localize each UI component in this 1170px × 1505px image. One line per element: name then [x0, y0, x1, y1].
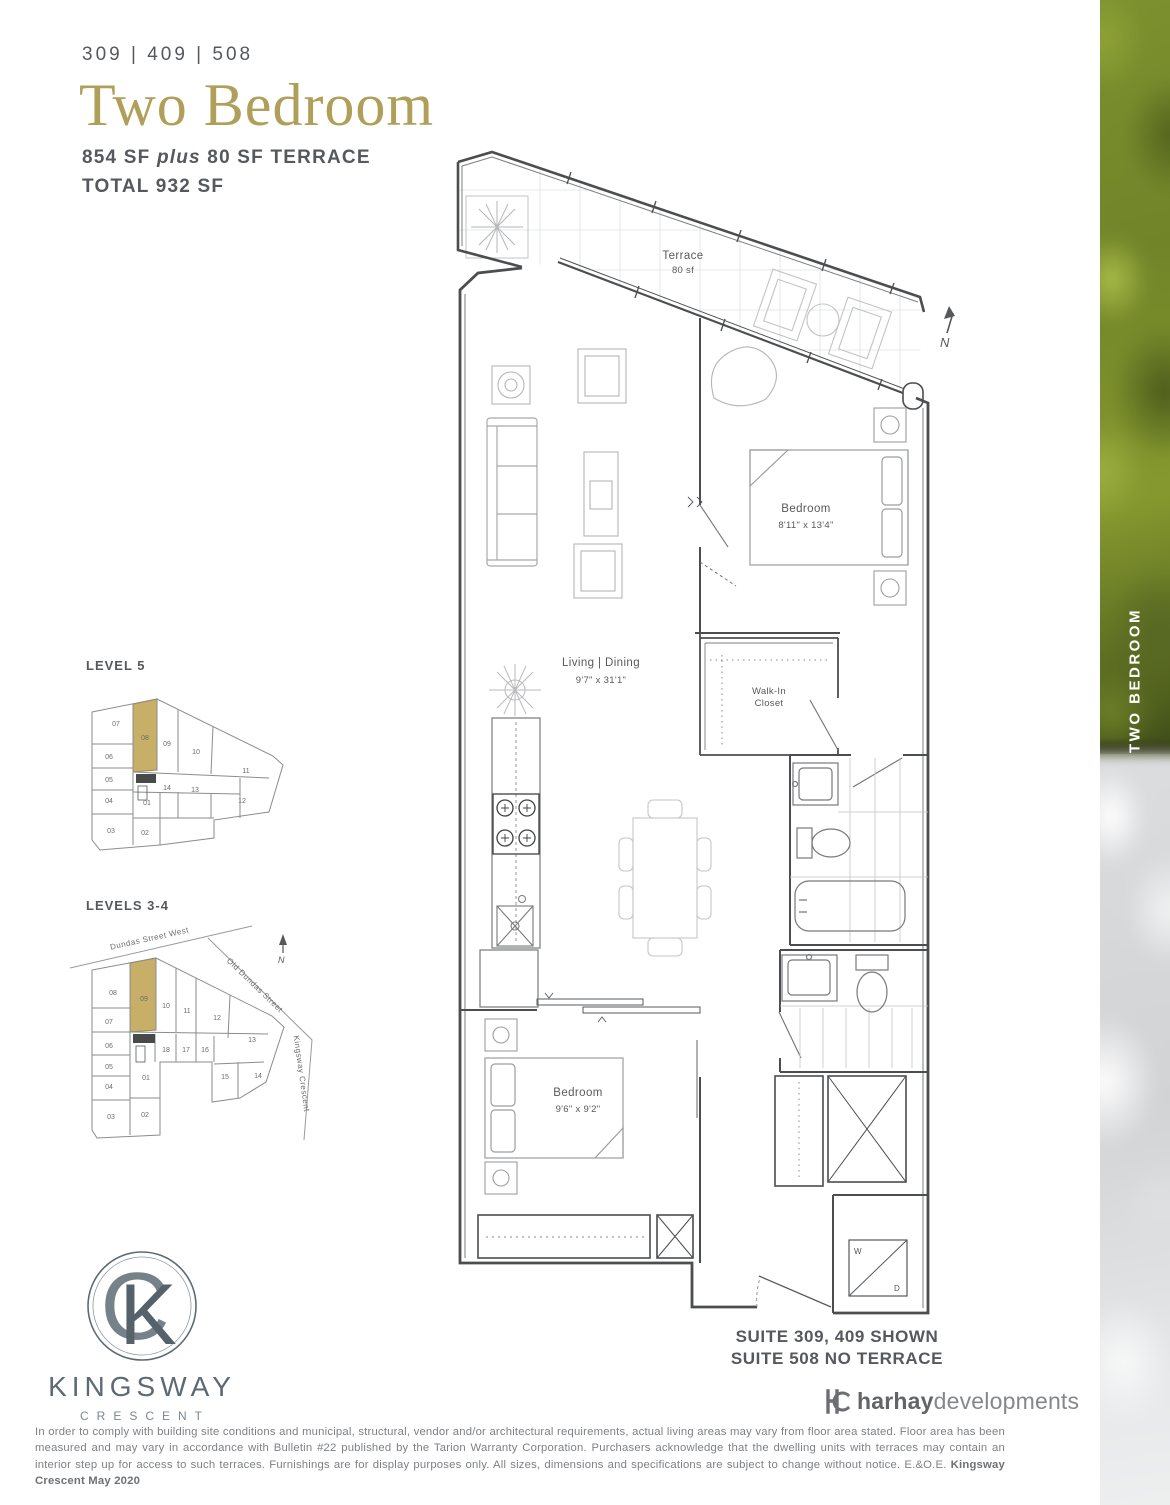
suite-note-line1: SUITE 309, 409 SHOWN: [736, 1327, 939, 1346]
kp34-unit: 15: [221, 1074, 229, 1081]
logo-name: KINGSWAY: [48, 1371, 236, 1402]
outer-walls: [460, 268, 928, 1313]
area-line: 854 SF plus 80 SF TERRACE: [82, 147, 434, 169]
living-room: Living | Dining 9'7" x 31'1": [487, 349, 640, 716]
terrace-area-label: 80 sf: [672, 265, 694, 276]
walk-in-closet: Walk-In Closet: [700, 633, 838, 755]
white-flower-photo: [1100, 754, 1170, 1505]
north-arrow-icon: N: [940, 306, 955, 350]
header: 309 | 409 | 508 Two Bedroom 854 SF plus …: [82, 44, 434, 198]
bath2-toilet: [856, 955, 888, 970]
main-floorplan: Terrace 80 sf N: [440, 140, 980, 1380]
armchair1: [711, 347, 776, 406]
harhay-mark-icon: [822, 1386, 852, 1416]
kp5-unit: 10: [192, 749, 200, 756]
sofa: [487, 418, 537, 566]
keyplan-north-label: N: [278, 955, 285, 965]
bedroom1-label: Bedroom: [781, 503, 830, 515]
street-kingsway-crescent: Kingsway Crescent: [292, 1035, 312, 1113]
street-old-dundas: Old Dundas Street: [225, 956, 285, 1014]
bath1-toilet: [797, 828, 812, 858]
developer-name-bold: harhay: [857, 1388, 934, 1414]
kp34-unit: 05: [105, 1064, 113, 1071]
linen-closet: [775, 1076, 906, 1186]
kp5-unit: 12: [238, 798, 246, 805]
laundry-closet: W D: [833, 1195, 928, 1313]
terrace: Terrace 80 sf: [450, 145, 930, 410]
kp34-unit: 06: [105, 1043, 113, 1050]
keyplan-levels34: LEVELS 3-4 Dundas Street West Old Dundas…: [60, 892, 360, 1182]
kp34-unit: 01: [142, 1075, 150, 1082]
fridge: [480, 950, 538, 1007]
stairs: [136, 1046, 145, 1062]
living-label: Living | Dining: [562, 657, 640, 669]
area-sf: 854 SF: [82, 147, 150, 168]
total-line: TOTAL 932 SF: [82, 176, 434, 198]
terrace-label: Terrace: [662, 250, 703, 262]
unit-numbers: 309 | 409 | 508: [82, 44, 434, 66]
suite-note: SUITE 309, 409 SHOWN SUITE 508 NO TERRAC…: [731, 1327, 943, 1368]
bedroom2-dims: 9'6" x 9'2": [556, 1104, 601, 1115]
developer-name: harhaydevelopments: [857, 1388, 1079, 1415]
street-dundas-west: Dundas Street West: [109, 925, 190, 951]
kp5-unit: 05: [105, 777, 113, 784]
kp34-unit: 14: [254, 1073, 262, 1080]
area-plus: plus: [157, 147, 201, 168]
plant-icon: [489, 664, 541, 716]
second-bathroom: [779, 950, 928, 1072]
developer-logo: harhaydevelopments: [822, 1386, 1079, 1416]
entry-door: [757, 1276, 831, 1307]
kitchen: [480, 718, 540, 1007]
kp34-unit: 02: [141, 1112, 149, 1119]
kp5-unit: 01: [143, 800, 151, 807]
disclaimer: In order to comply with building site co…: [35, 1424, 1005, 1490]
kitchen-sink: [497, 906, 533, 946]
elevator-core: [136, 774, 156, 783]
kc-monogram-icon: C K: [88, 1252, 196, 1363]
kp5-unit: 02: [141, 830, 149, 837]
kp34-unit: 03: [107, 1114, 115, 1121]
plant-icon: [471, 201, 523, 253]
kp5-unit: 13: [191, 787, 199, 794]
page-title: Two Bedroom: [79, 74, 434, 137]
area-terrace: 80 SF TERRACE: [207, 147, 370, 168]
kp34-unit: 12: [213, 1015, 221, 1022]
logo-sub: CRESCENT: [80, 1409, 210, 1423]
elevator-core: [133, 1034, 155, 1043]
kp34-unit: 11: [183, 1008, 190, 1015]
suite-note-line2: SUITE 508 NO TERRACE: [731, 1349, 943, 1368]
keyplan-level5: LEVEL 5 07 08 09 10 11 06 05 04 03 02 01…: [80, 652, 330, 882]
kingsway-logo: C K KINGSWAY CRESCENT: [42, 1242, 242, 1442]
kp5-unit: 03: [107, 828, 115, 835]
main-bathroom: [790, 755, 928, 945]
terrace-table: [807, 304, 839, 336]
kp5-unit: 08: [141, 735, 149, 742]
kp34-unit: 08: [109, 990, 117, 997]
kp5-unit: 04: [105, 798, 113, 805]
kp5-unit: 07: [112, 721, 120, 728]
nightstands1: [874, 408, 906, 605]
sliding-door: [537, 993, 700, 1022]
kp34-unit: 17: [182, 1047, 190, 1054]
kp34-unit: 07: [105, 1019, 113, 1026]
bedroom1-dims: 8'11" x 13'4": [778, 520, 833, 531]
kp5-unit: 06: [105, 754, 113, 761]
washer-label: W: [854, 1247, 862, 1256]
dining-set: [619, 800, 711, 956]
kp34-unit: 10: [162, 1003, 170, 1010]
kp34-unit: 13: [248, 1037, 256, 1044]
stairs: [138, 786, 147, 800]
photo-strip: TWO BEDROOM: [1100, 0, 1170, 1505]
keyplan5-title: LEVEL 5: [86, 658, 146, 673]
kp34-unit: 16: [201, 1047, 209, 1054]
disclaimer-body: In order to comply with building site co…: [35, 1426, 1005, 1471]
media-table: [584, 452, 618, 536]
kp34-unit: 18: [162, 1047, 170, 1054]
keyplan-north-arrow-icon: N: [278, 934, 287, 965]
highlighted-unit: [130, 958, 156, 1032]
closet-label-2: Closet: [755, 698, 784, 709]
kp5-unit: 09: [163, 741, 171, 748]
bedroom1: Bedroom 8'11" x 13'4": [688, 318, 908, 633]
keyplan34-title: LEVELS 3-4: [86, 898, 169, 913]
kitchen-faucet: [519, 896, 526, 903]
dryer-label: D: [894, 1284, 900, 1293]
lounge-chairs: [753, 269, 891, 369]
closet-label-1: Walk-In: [752, 686, 786, 697]
kp34-unit: 04: [105, 1084, 113, 1091]
wall-column: [903, 383, 923, 409]
living-dims: 9'7" x 31'1": [576, 675, 626, 686]
bedroom2: Bedroom 9'6" x 9'2": [460, 993, 700, 1263]
developer-name-light: developments: [934, 1388, 1080, 1414]
kp5-unit: 11: [242, 768, 249, 775]
north-label: N: [940, 335, 950, 350]
bedroom2-label: Bedroom: [553, 1087, 602, 1099]
kp5-unit: 14: [163, 785, 171, 792]
kp34-unit: 09: [140, 996, 148, 1003]
monogram-k: K: [119, 1267, 176, 1363]
strip-vertical-label: TWO BEDROOM: [1127, 608, 1144, 753]
bedroom2-closet: [478, 1215, 693, 1258]
bed2: [485, 1058, 623, 1158]
floorplan-page: 309 | 409 | 508 Two Bedroom 854 SF plus …: [0, 0, 1170, 1505]
